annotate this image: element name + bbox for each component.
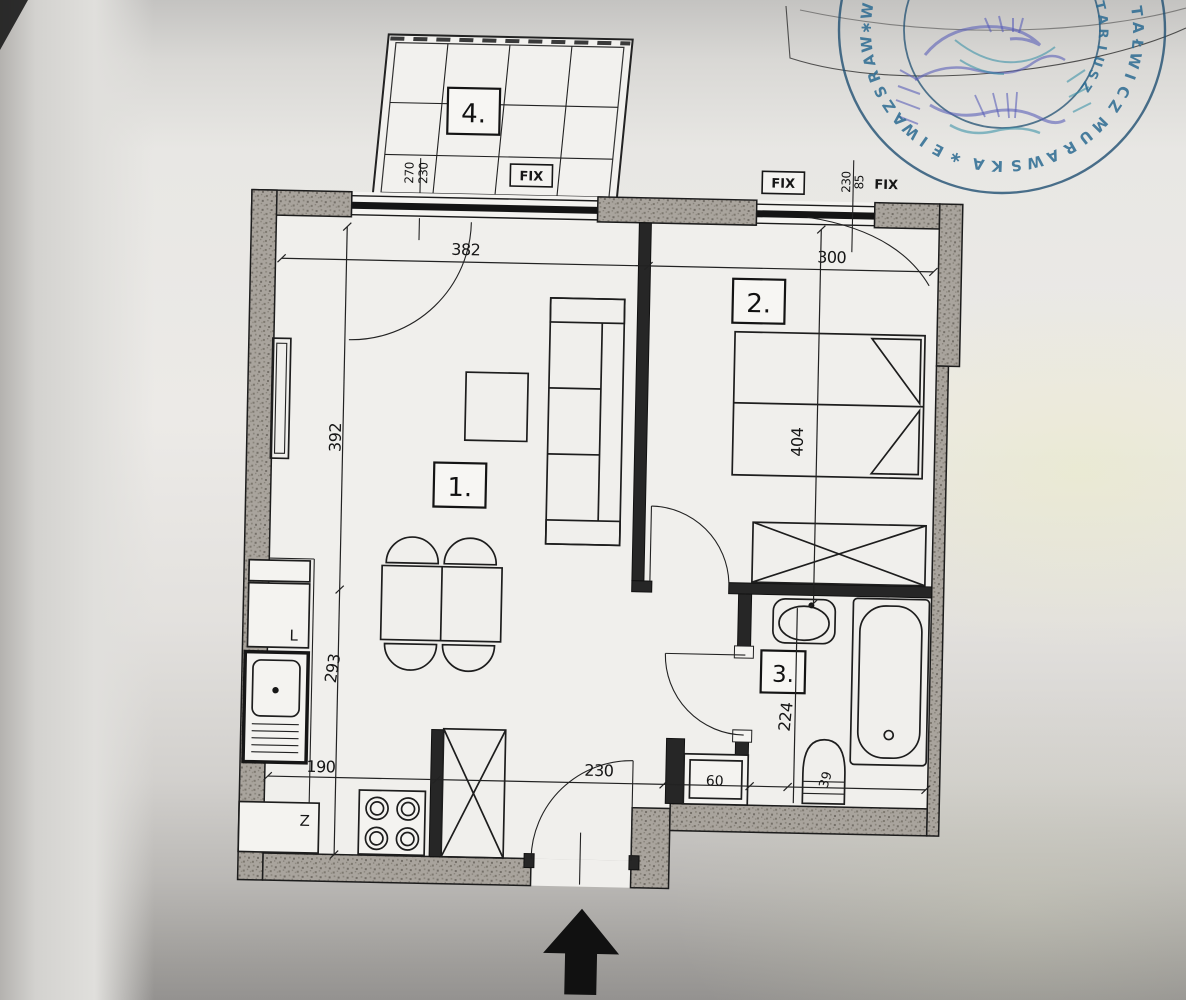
fix-label-balcony: FIX: [519, 169, 543, 184]
stamp-letter: U: [1075, 126, 1096, 148]
stamp-letter: E: [929, 140, 947, 161]
balcony-window-spec-b: 230: [416, 162, 430, 184]
appliance-label: Z: [299, 812, 310, 830]
stamp-letter: M: [1088, 113, 1111, 136]
fridge: L: [247, 583, 309, 648]
wall-bottom-step: [630, 808, 670, 889]
room-label-3: 3.: [772, 662, 794, 688]
wall-bottom-bathroom: [670, 804, 928, 836]
stamp-letter: C: [1113, 83, 1134, 101]
stamp-letter: W: [857, 1, 877, 20]
bathroom-door-jamb-bottom: [733, 730, 752, 742]
stamp-letter: R: [864, 68, 885, 85]
stamp-letter: W: [857, 35, 877, 54]
counter-bottom-box: Z: [238, 801, 319, 853]
stamp-letter: S: [1010, 156, 1023, 175]
stamp-letter: R: [1095, 28, 1110, 39]
stamp-letter: W: [1124, 51, 1145, 72]
balcony-window-spec-a: 270: [402, 162, 416, 184]
notary-stamp: W∗WARSZAWIE∗AKSWARUMZCIWŁATZSUIRATON: [786, 0, 1186, 193]
wall-bedroom-bottom-left: [632, 581, 652, 592]
stamp-letter: A: [859, 53, 879, 69]
room-label-4: 4.: [461, 99, 486, 130]
stamp-letter: ∗: [946, 147, 964, 168]
washing-machine: 60: [683, 754, 748, 805]
stamp-letter: Z: [1104, 97, 1125, 116]
stamp-letter: A: [1094, 14, 1110, 26]
stamp-letter: I: [1093, 44, 1109, 51]
scan-corner-artifact: [0, 0, 28, 50]
stamp-letter: A: [1129, 22, 1147, 34]
room-label-2: 2.: [746, 289, 771, 320]
bedroom-window-spec-b: 85: [852, 175, 866, 190]
stamp-letter: U: [1089, 54, 1107, 69]
wall-washer-niche: [665, 738, 684, 803]
stamp-letter: K: [990, 157, 1004, 175]
dim-bath-height: 224: [775, 701, 797, 732]
dim-bedroom-width: 300: [817, 247, 847, 267]
dim-living-width: 382: [451, 240, 480, 260]
balcony-door-window: [351, 192, 597, 222]
eagle-emblem: [896, 16, 1091, 133]
stamp-letter: ∗: [857, 21, 875, 34]
stamp-letter: T: [1091, 0, 1108, 12]
entrance-jamb-right: [629, 856, 639, 870]
wall-right-notch: [936, 204, 962, 366]
bathroom-door-jamb-top: [734, 646, 753, 658]
dim-kitchen-width: 190: [306, 757, 336, 777]
floor-plan-canvas: W∗WARSZAWIE∗AKSWARUMZCIWŁATZSUIRATON 4. …: [0, 0, 1186, 1000]
stamp-letter: S: [870, 83, 891, 101]
wall-top-middle: [597, 197, 756, 225]
stamp-letter: T: [1127, 5, 1146, 18]
entrance-opening-floor: [530, 859, 631, 888]
entrance-jamb-left: [524, 853, 534, 867]
wall-bathroom-left-upper: [737, 594, 751, 650]
floor-plan: 4. FIX 270 230: [235, 32, 966, 1000]
fix-label-bedroom-plain: FIX: [874, 178, 898, 193]
room-label-1: 1.: [447, 473, 472, 504]
stamp-letter: A: [1044, 146, 1062, 167]
stove: [358, 790, 425, 855]
kitchen-sink: [243, 652, 308, 763]
fridge-label: L: [289, 627, 298, 645]
bedroom-window-labels: FIX 230 85 FIX: [762, 170, 898, 197]
dim-hall-width: 230: [584, 761, 614, 781]
entrance-arrow-icon: [542, 908, 620, 996]
dim-living-height: 392: [326, 423, 346, 452]
fix-label-bedroom-boxed: FIX: [771, 177, 795, 192]
stamp-letter: I: [1120, 71, 1139, 82]
stamp-letter: R: [1060, 137, 1079, 159]
dim-bedroom-height: 404: [788, 427, 808, 457]
wall-top-right: [874, 203, 940, 229]
counter-top-box: [249, 560, 310, 582]
stamp-letter: W: [1024, 151, 1045, 173]
washer-dim: 60: [706, 773, 724, 789]
stamp-letter: A: [971, 154, 986, 174]
